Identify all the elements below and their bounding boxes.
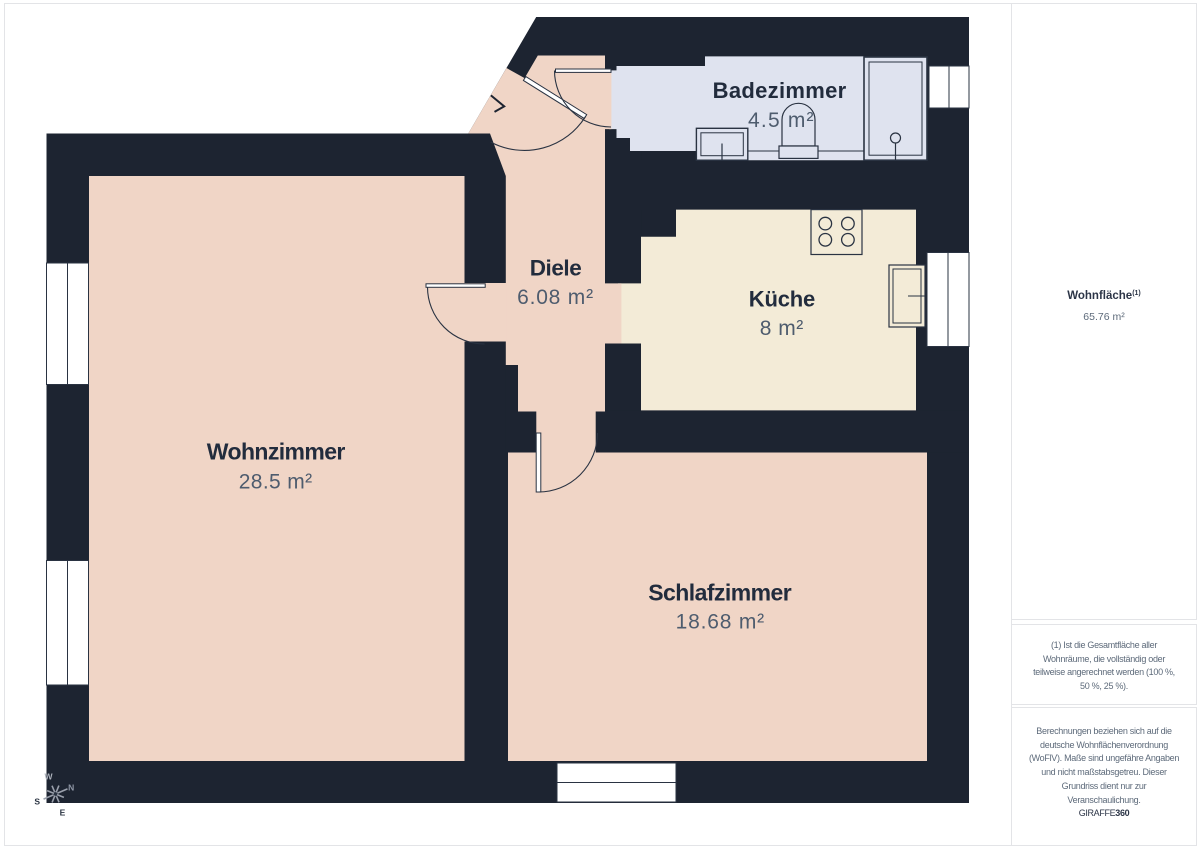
svg-text:W: W	[44, 772, 53, 782]
svg-text:6.08 m²: 6.08 m²	[517, 286, 594, 309]
svg-text:28.5 m²: 28.5 m²	[239, 471, 313, 494]
svg-text:E: E	[60, 808, 66, 818]
svg-text:8 m²: 8 m²	[760, 317, 804, 340]
svg-text:N: N	[68, 782, 74, 792]
svg-text:Badezimmer: Badezimmer	[713, 78, 847, 103]
svg-text:Diele: Diele	[530, 256, 582, 281]
svg-text:18.68 m²: 18.68 m²	[676, 610, 765, 633]
svg-text:Schlafzimmer: Schlafzimmer	[648, 580, 792, 606]
svg-text:Wohnzimmer: Wohnzimmer	[207, 439, 346, 465]
svg-text:4.5 m²: 4.5 m²	[748, 109, 815, 132]
svg-text:Küche: Küche	[749, 287, 815, 312]
svg-text:S: S	[34, 797, 40, 807]
